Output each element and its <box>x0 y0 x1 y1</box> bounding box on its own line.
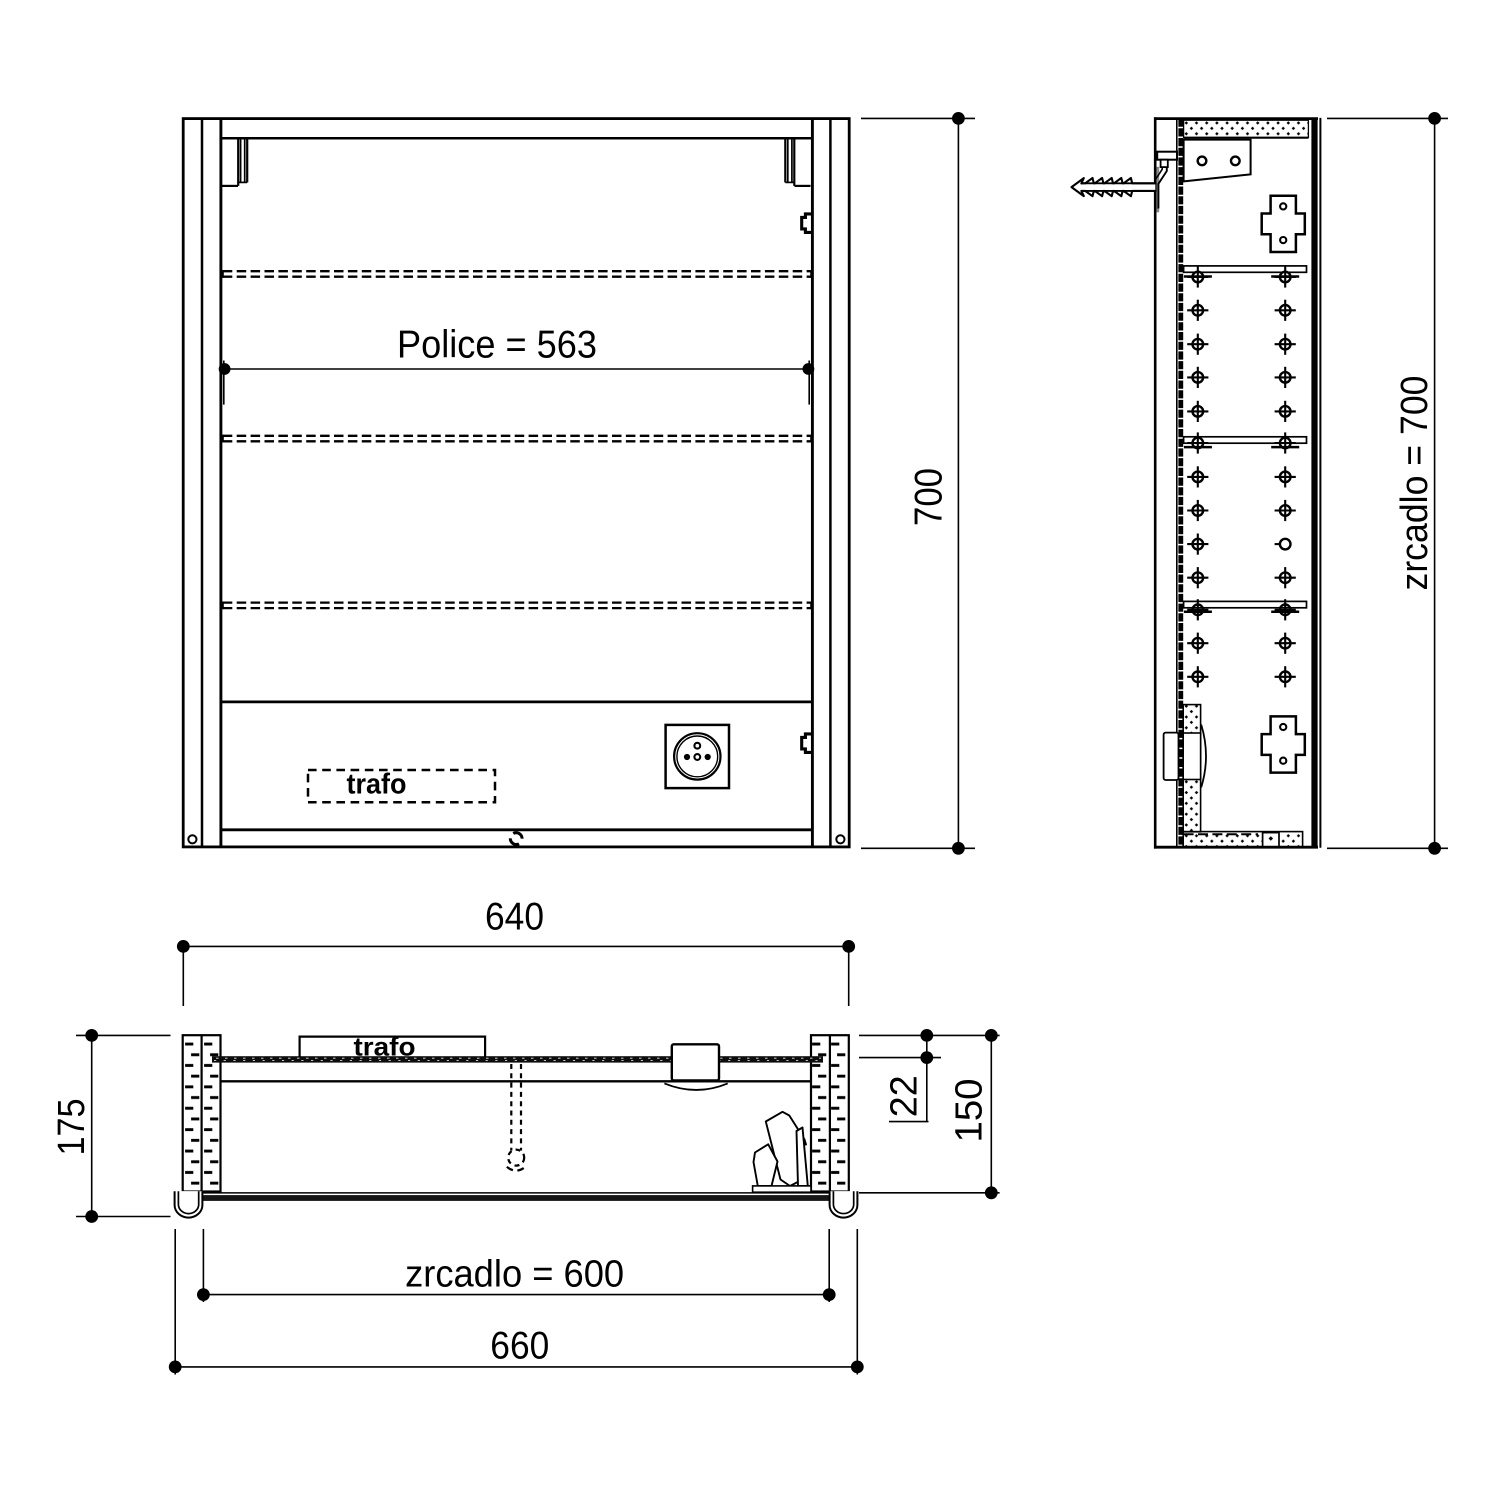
svg-text:trafo: trafo <box>354 1032 416 1062</box>
svg-text:Police = 563: Police = 563 <box>397 324 597 367</box>
svg-text:trafo: trafo <box>347 769 407 801</box>
svg-text:175: 175 <box>51 1099 93 1156</box>
svg-text:640: 640 <box>485 896 544 939</box>
svg-text:660: 660 <box>490 1325 549 1368</box>
svg-text:22: 22 <box>884 1075 926 1117</box>
svg-text:700: 700 <box>908 468 951 526</box>
svg-text:zrcadlo = 700: zrcadlo = 700 <box>1394 376 1436 591</box>
svg-text:150: 150 <box>949 1079 991 1143</box>
svg-text:zrcadlo = 600: zrcadlo = 600 <box>405 1254 624 1296</box>
